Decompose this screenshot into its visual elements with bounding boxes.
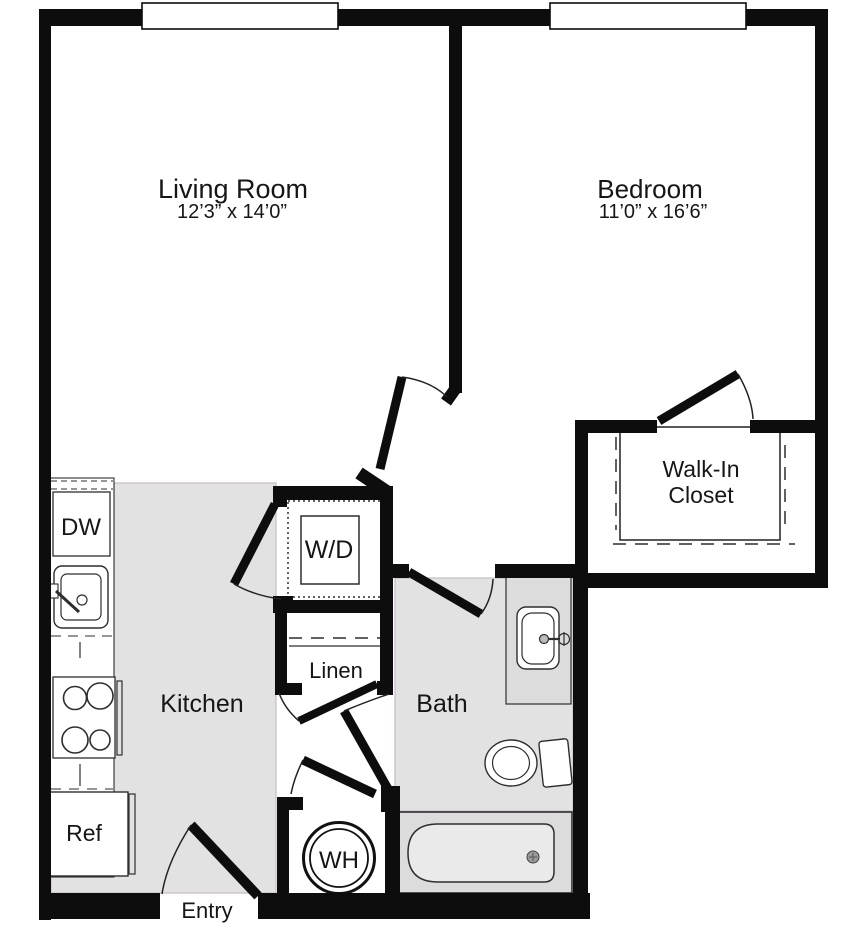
label-linen: Linen: [309, 658, 363, 683]
label-water-heater: WH: [319, 847, 359, 874]
door-bedroom: [380, 377, 447, 469]
vanity-sink: [506, 576, 571, 704]
toilet: [485, 739, 572, 788]
label-dishwasher: DW: [61, 514, 101, 541]
label-living-room: Living Room: [158, 174, 308, 204]
label-washer-dryer: W/D: [305, 536, 354, 564]
label-walk-in-closet-line2: Closet: [668, 482, 734, 508]
label-bedroom-dims: 11’0” x 16’6”: [599, 201, 708, 223]
door-hall-bath: [344, 694, 389, 789]
floor-plan: Living Room 12’3” x 14’0” Bedroom 11’0” …: [0, 0, 857, 931]
label-walk-in-closet-line1: Walk-In: [662, 456, 739, 482]
kitchen-sink: [50, 566, 108, 628]
label-bedroom: Bedroom: [597, 174, 703, 204]
floor-plan-drawing: Living Room 12’3” x 14’0” Bedroom 11’0” …: [0, 0, 857, 931]
linen-shelf: [289, 638, 381, 646]
window-living-room: [142, 3, 338, 29]
door-walk-in-closet: [659, 374, 753, 421]
label-kitchen: Kitchen: [160, 690, 243, 718]
label-bath: Bath: [416, 690, 467, 718]
bathtub: [396, 812, 572, 893]
label-entry: Entry: [181, 898, 232, 923]
label-living-room-dims: 12’3” x 14’0”: [177, 201, 287, 223]
living-bedroom-wall: [449, 26, 462, 393]
window-bedroom: [550, 3, 746, 29]
label-refrigerator: Ref: [66, 820, 102, 846]
stove: [53, 677, 122, 758]
door-water-heater: [291, 760, 375, 794]
